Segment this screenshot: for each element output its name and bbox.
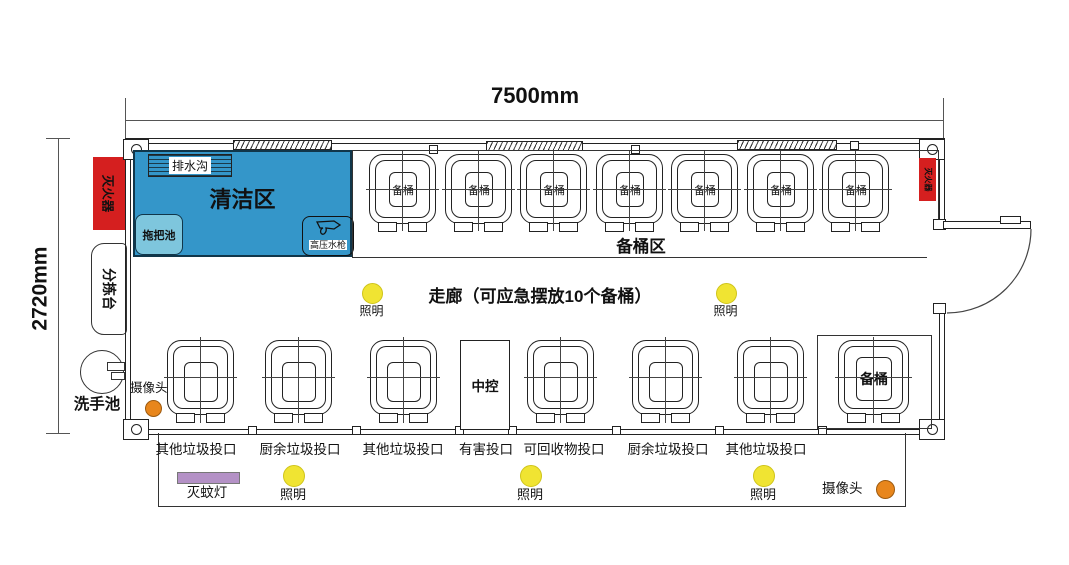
mosquito-lamp <box>177 472 240 484</box>
vent-window <box>737 140 837 150</box>
light-label: 照明 <box>705 305 746 318</box>
chute-label: 其他垃圾投口 <box>136 443 256 458</box>
dimension-tick-top <box>46 138 70 139</box>
dimension-tick-bottom <box>46 433 70 434</box>
light-icon <box>716 283 737 304</box>
faucet-icon <box>111 372 125 380</box>
chute-label: 厨余垃圾投口 <box>240 443 360 458</box>
drainage-ditch: 排水沟 <box>148 154 232 177</box>
dimension-extension-right <box>943 98 944 138</box>
mosquito-lamp-label: 灭蚊灯 <box>167 486 247 501</box>
pressure-washer-gun-icon <box>313 219 343 237</box>
faucet-icon <box>107 362 125 371</box>
sorting-table-label: 分拣台 <box>99 268 119 310</box>
dimension-height-line <box>58 138 59 433</box>
hand-sink-label: 洗手池 <box>66 396 128 413</box>
bucket-label: 备桶 <box>860 369 888 389</box>
light-icon <box>283 465 305 487</box>
chute-label: 可回收物投口 <box>504 443 624 458</box>
pressure-gun-box: 高压水枪 <box>302 216 354 256</box>
light-icon <box>362 283 383 304</box>
corridor-label: 走廊（可应急摆放10个备桶） <box>420 288 660 307</box>
mop-sink-label: 拖把池 <box>143 227 176 243</box>
fire-extinguisher-left: 灭火器 <box>93 157 125 230</box>
door-jamb <box>933 303 946 314</box>
camera-outdoor-label: 摄像头 <box>822 482 863 497</box>
dimension-extension-left <box>125 98 126 138</box>
central-control-label: 中控 <box>472 375 499 395</box>
light-label: 照明 <box>510 488 550 502</box>
sorting-table: 分拣台 <box>91 243 127 335</box>
light-label: 照明 <box>351 305 392 318</box>
fire-extinguisher-right: 灭火器 <box>919 158 936 201</box>
light-label: 照明 <box>743 488 783 502</box>
door-handle <box>1000 216 1021 224</box>
cleaning-area: 清洁区 排水沟 拖把池 高压水枪 <box>133 150 352 257</box>
drainage-ditch-label: 排水沟 <box>169 157 211 174</box>
dimension-height-label: 2720mm <box>28 243 51 335</box>
wall-stud <box>850 141 859 150</box>
fire-extinguisher-label: 灭火器 <box>922 168 933 192</box>
light-label: 照明 <box>273 488 313 502</box>
spare-bucket-zone-label: 备桶区 <box>596 238 686 256</box>
vent-window <box>233 140 332 150</box>
light-icon <box>753 465 775 487</box>
floor-plan: 7500mm 2720mm 灭火器 分拣台 洗手池 清洁区 排水沟 <box>0 0 1069 565</box>
central-control: 中控 <box>460 340 510 430</box>
pressure-gun-label: 高压水枪 <box>303 241 353 251</box>
mop-sink: 拖把池 <box>135 214 183 255</box>
camera-indoor-label: 摄像头 <box>130 382 168 396</box>
dimension-width-label: 7500mm <box>475 84 595 108</box>
light-icon <box>520 465 542 487</box>
dimension-width-line <box>125 120 944 121</box>
door-opening <box>927 220 945 312</box>
chute-label: 其他垃圾投口 <box>706 443 826 458</box>
corner-fitting <box>123 419 149 440</box>
cleaning-area-label: 清洁区 <box>135 188 350 212</box>
camera-icon <box>876 480 895 499</box>
fire-extinguisher-label: 灭火器 <box>100 175 119 213</box>
camera-icon <box>145 400 162 417</box>
